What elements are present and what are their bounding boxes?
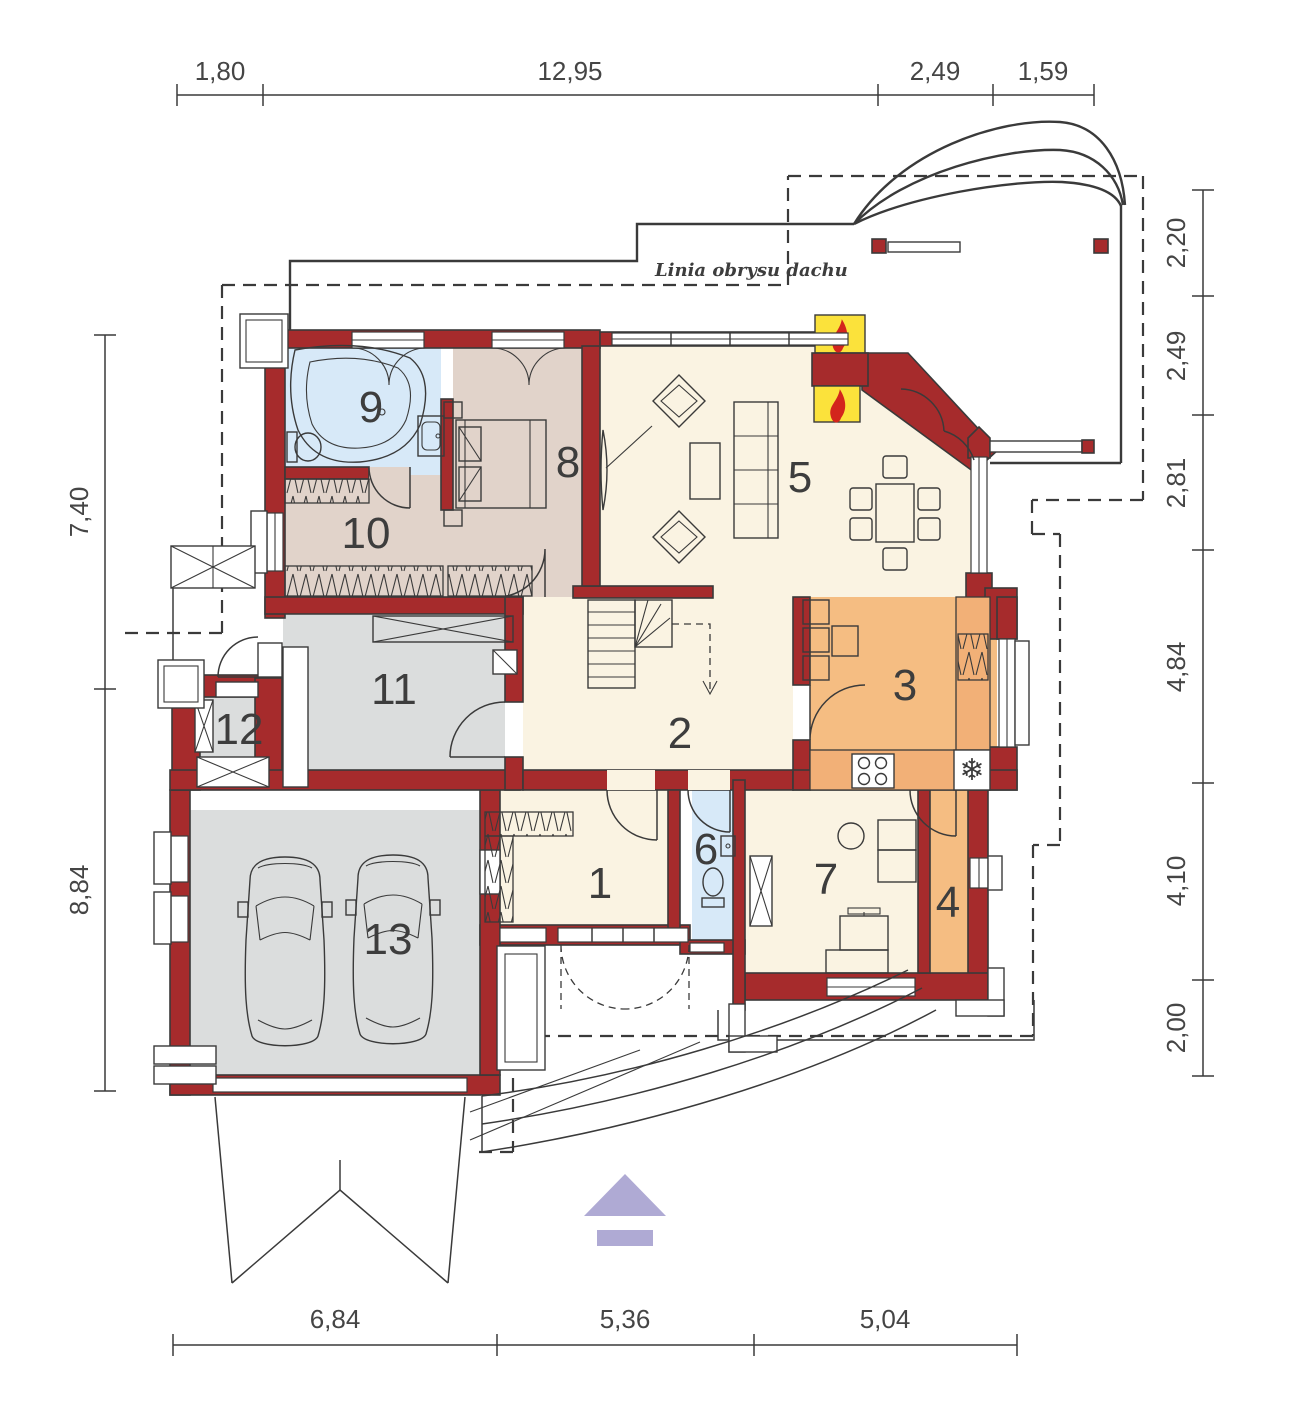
- dim-label: 2,00: [1161, 1003, 1191, 1054]
- room-label-5: 5: [788, 453, 812, 502]
- wardrobe: [285, 479, 369, 503]
- dim-label: 2,49: [1161, 331, 1191, 382]
- terrace-post: [872, 239, 886, 253]
- dimension-right: 2,20 2,49 2,81 4,84 4,10 2,00: [1161, 190, 1214, 1076]
- room-label-10: 10: [342, 509, 391, 558]
- room-label-1: 1: [588, 859, 612, 908]
- room-label-6: 6: [694, 825, 718, 874]
- dim-label: 2,20: [1161, 218, 1191, 269]
- room-label-7: 7: [814, 855, 838, 904]
- dim-label: 1,59: [1018, 56, 1069, 86]
- room-label-11: 11: [371, 665, 417, 714]
- wardrobe: [285, 566, 443, 596]
- terrace-railing: [990, 441, 1082, 452]
- room-label-12: 12: [215, 705, 264, 754]
- floor-plan-page: ❄: [0, 0, 1300, 1418]
- floor-plan: ❄: [0, 0, 1300, 1418]
- dim-label: 4,10: [1161, 856, 1191, 907]
- snowflake-icon: ❄: [959, 753, 984, 788]
- wardrobe: [448, 566, 532, 596]
- room-label-8: 8: [556, 438, 580, 487]
- floor-vestibule-1: [500, 790, 668, 925]
- dim-label: 1,80: [195, 56, 246, 86]
- dimension-top: 1,80 12,95 2,49 1,59: [177, 56, 1094, 106]
- dimension-left: 7,40 8,84: [64, 335, 116, 1091]
- room-label-3: 3: [893, 661, 917, 710]
- room-label-2: 2: [668, 709, 692, 758]
- floor-garage-13: [190, 810, 480, 1075]
- terrace-railing: [888, 242, 960, 252]
- room-label-9: 9: [359, 383, 383, 432]
- kitchen-sink: [958, 634, 988, 680]
- room-label-13: 13: [364, 915, 413, 964]
- tall-cabinet: [283, 647, 308, 787]
- dim-label: 6,84: [310, 1304, 361, 1334]
- roof-outline-label: Linia obrysu dachu: [654, 260, 848, 281]
- dim-label: 12,95: [537, 56, 602, 86]
- terrace-post: [1094, 239, 1108, 253]
- closet: [485, 812, 573, 836]
- driveway: [215, 1097, 465, 1283]
- dim-label: 4,84: [1161, 642, 1191, 693]
- side-entry-step: [158, 660, 204, 708]
- entrance-arrow-icon: [584, 1174, 666, 1246]
- floor-hall-2: [523, 597, 793, 770]
- dim-label: 2,81: [1161, 458, 1191, 509]
- stove: [852, 754, 894, 788]
- dim-label: 8,84: [64, 865, 94, 916]
- dim-label: 7,40: [64, 487, 94, 538]
- closet: [485, 836, 513, 922]
- dim-label: 5,04: [860, 1304, 911, 1334]
- dimension-bottom: 6,84 5,36 5,04: [173, 1304, 1017, 1356]
- dim-label: 5,36: [600, 1304, 651, 1334]
- room-label-4: 4: [936, 878, 960, 927]
- vent-block: [171, 546, 255, 662]
- dim-label: 2,49: [910, 56, 961, 86]
- terrace-post: [1082, 440, 1094, 453]
